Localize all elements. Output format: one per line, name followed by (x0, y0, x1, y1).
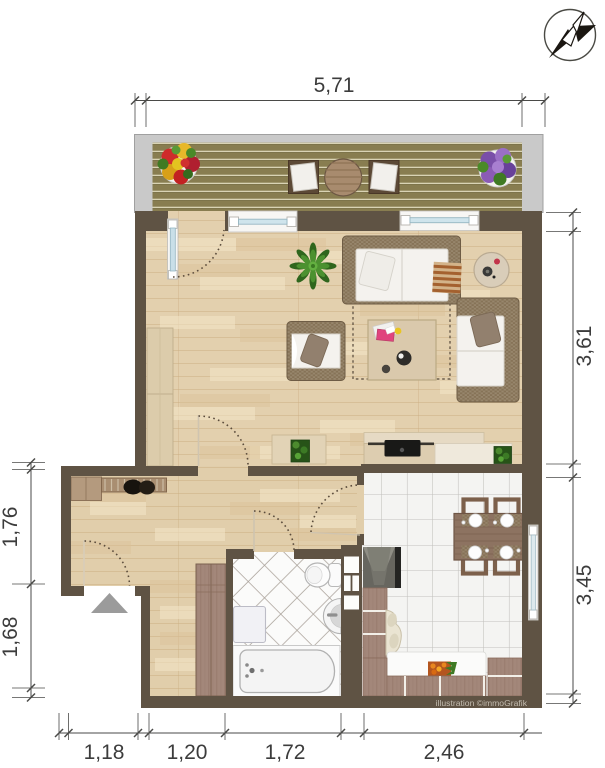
svg-text:1,76: 1,76 (0, 507, 22, 548)
svg-text:2,46: 2,46 (424, 741, 465, 764)
svg-text:1,72: 1,72 (265, 741, 306, 764)
svg-text:illustration ©immoGrafik: illustration ©immoGrafik (436, 698, 528, 708)
svg-text:3,45: 3,45 (573, 565, 596, 606)
svg-text:3,61: 3,61 (573, 326, 596, 367)
svg-text:1,68: 1,68 (0, 617, 22, 658)
svg-text:5,71: 5,71 (314, 74, 355, 97)
svg-text:1,20: 1,20 (167, 741, 208, 764)
svg-text:1,18: 1,18 (84, 741, 125, 764)
